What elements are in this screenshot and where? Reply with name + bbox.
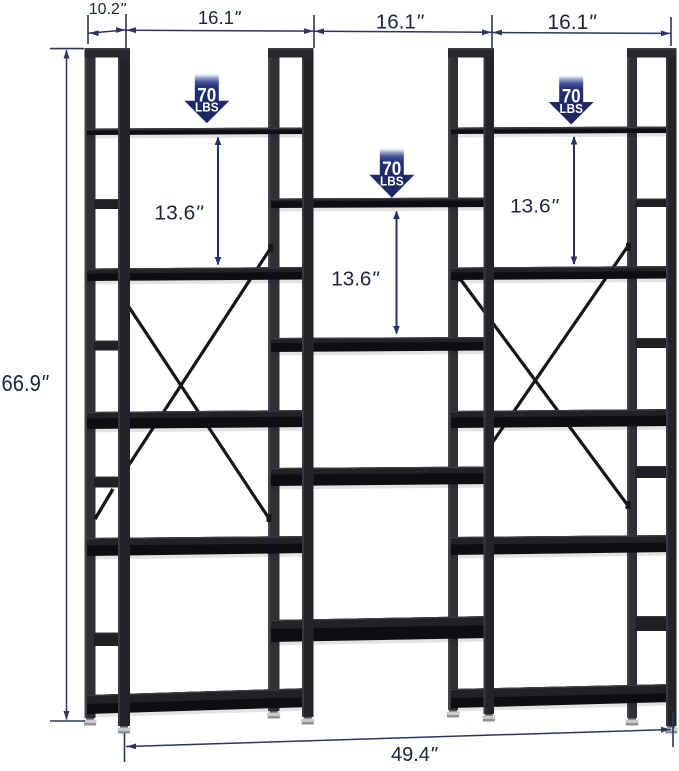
svg-text:16.1": 16.1"	[376, 11, 425, 34]
svg-text:13.6": 13.6"	[331, 269, 379, 291]
svg-text:16.1": 16.1"	[198, 7, 242, 28]
svg-text:13.6": 13.6"	[154, 203, 203, 225]
svg-text:16.1": 16.1"	[547, 11, 597, 34]
svg-text:13.6": 13.6"	[510, 195, 559, 217]
svg-text:49.4": 49.4"	[391, 744, 438, 766]
svg-text:LBS: LBS	[559, 101, 583, 116]
svg-text:10.2": 10.2"	[89, 1, 127, 18]
svg-text:LBS: LBS	[195, 100, 219, 115]
svg-text:LBS: LBS	[380, 174, 404, 189]
svg-text:66.9": 66.9"	[2, 370, 50, 396]
